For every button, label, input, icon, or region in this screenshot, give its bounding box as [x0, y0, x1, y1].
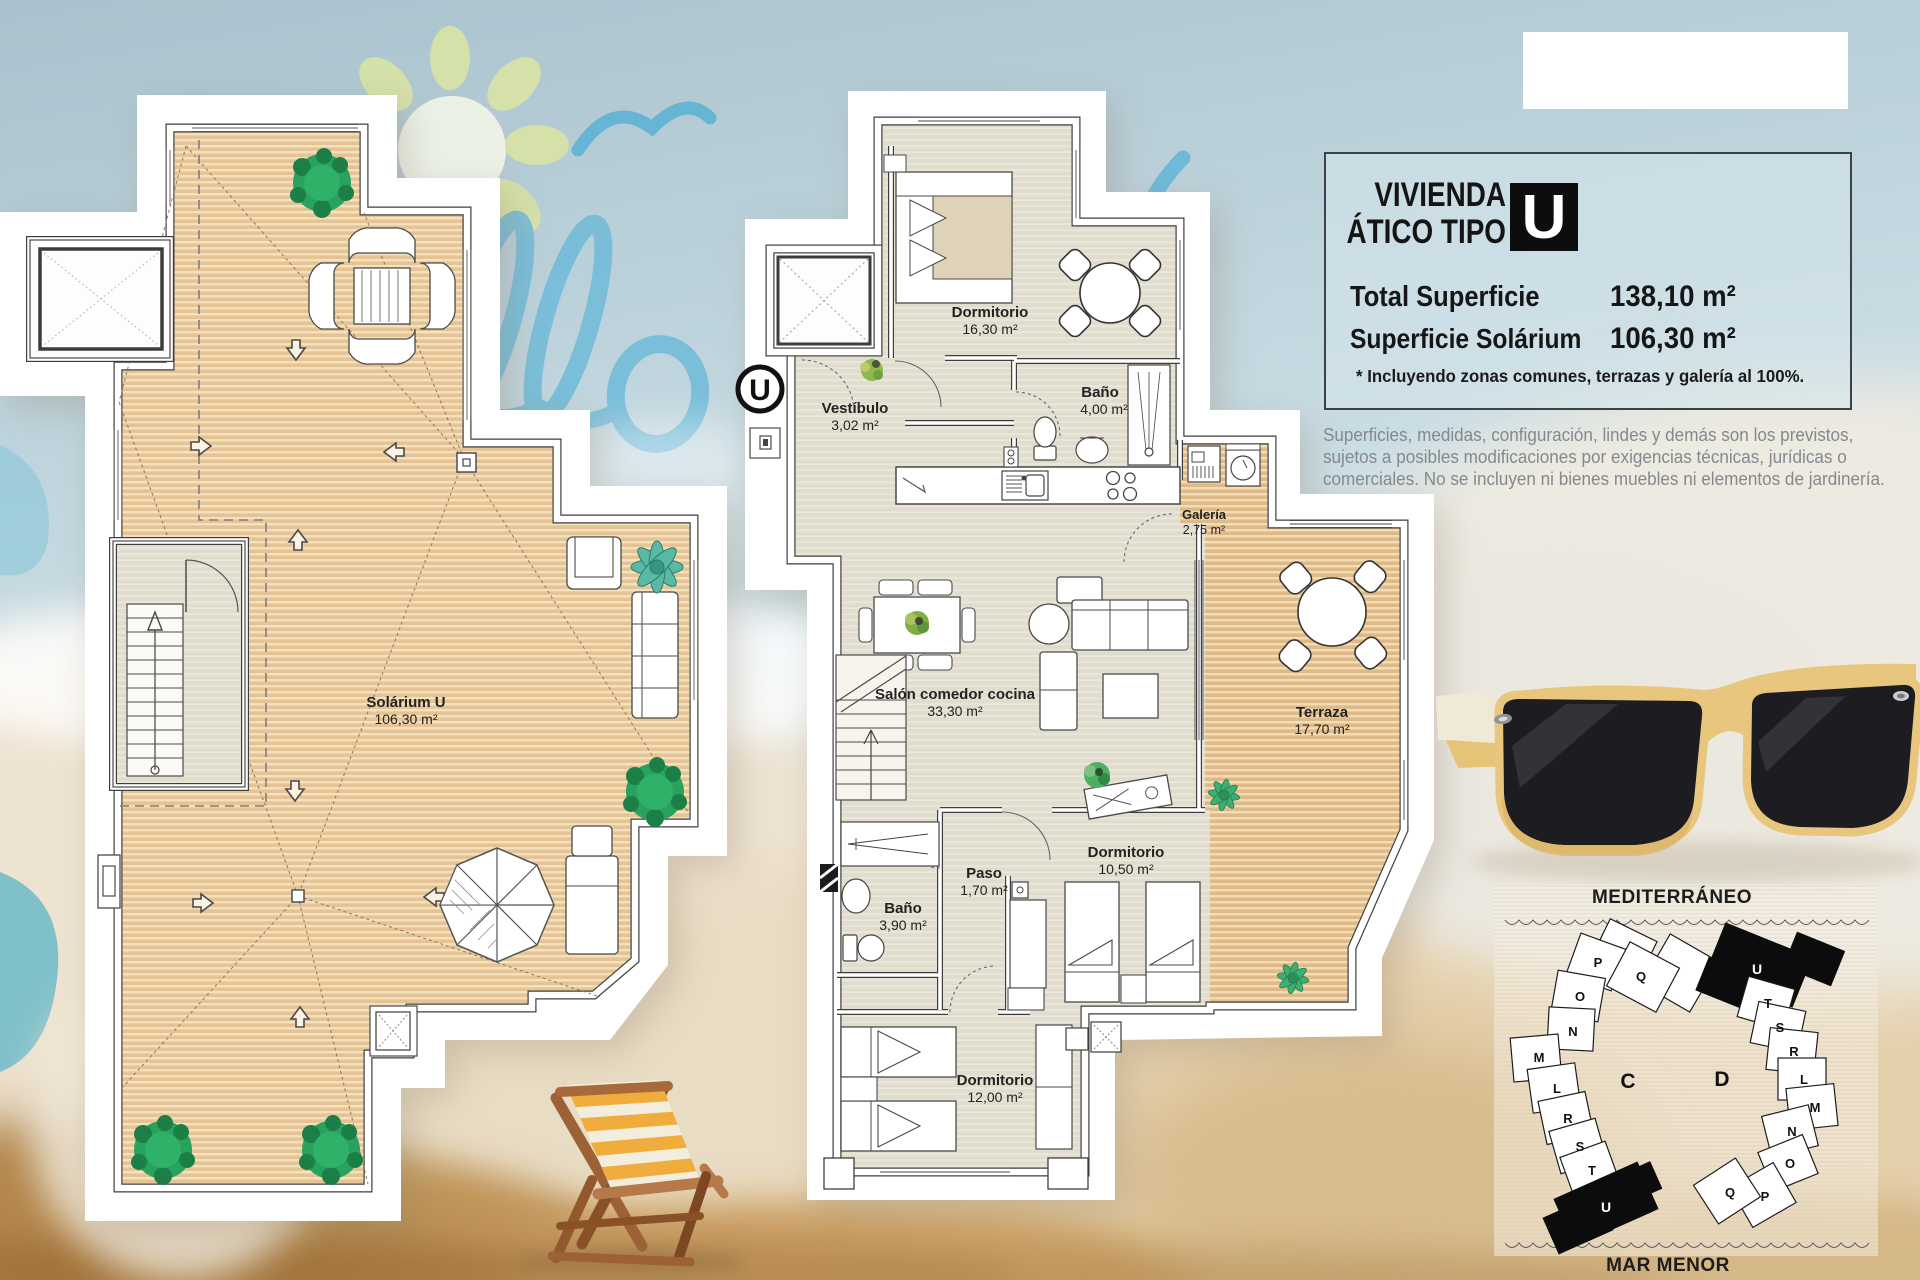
svg-text:Solárium U: Solárium U [366, 694, 445, 711]
svg-text:S: S [1776, 1020, 1785, 1035]
svg-text:Dormitorio: Dormitorio [957, 1072, 1034, 1089]
svg-text:N: N [1568, 1024, 1577, 1039]
svg-text:U: U [1752, 961, 1762, 977]
svg-text:2,75 m²: 2,75 m² [1183, 523, 1225, 537]
svg-text:R: R [1563, 1111, 1573, 1126]
svg-text:12,00 m²: 12,00 m² [967, 1089, 1023, 1105]
svg-text:U: U [749, 374, 771, 407]
svg-text:M: M [1810, 1100, 1821, 1115]
svg-text:P: P [1594, 955, 1603, 970]
svg-text:1,70 m²: 1,70 m² [960, 882, 1008, 898]
svg-text:Galería: Galería [1182, 507, 1227, 522]
svg-text:T: T [1588, 1163, 1596, 1178]
svg-text:R: R [1789, 1044, 1799, 1059]
svg-text:Dormitorio: Dormitorio [952, 304, 1029, 321]
svg-text:Baño: Baño [1081, 384, 1119, 401]
svg-text:Q: Q [1725, 1185, 1735, 1200]
svg-text:3,90 m²: 3,90 m² [879, 917, 927, 933]
svg-text:T: T [1764, 996, 1772, 1011]
svg-text:L: L [1800, 1072, 1808, 1087]
svg-text:S: S [1576, 1139, 1585, 1154]
svg-text:Salón comedor cocina: Salón comedor cocina [875, 686, 1036, 703]
svg-text:4,00 m²: 4,00 m² [1080, 401, 1128, 417]
svg-text:Q: Q [1636, 969, 1646, 984]
svg-text:Dormitorio: Dormitorio [1088, 844, 1165, 861]
svg-text:33,30 m²: 33,30 m² [927, 703, 983, 719]
svg-text:M: M [1534, 1050, 1545, 1065]
svg-text:Terraza: Terraza [1296, 704, 1349, 721]
svg-text:P: P [1761, 1189, 1770, 1204]
svg-text:C: C [1620, 1070, 1635, 1093]
svg-text:16,30 m²: 16,30 m² [962, 321, 1018, 337]
svg-text:MAR MENOR: MAR MENOR [1606, 1255, 1730, 1276]
svg-text:3,02 m²: 3,02 m² [831, 417, 879, 433]
svg-text:MEDITERRÁNEO: MEDITERRÁNEO [1592, 886, 1752, 908]
svg-text:L: L [1553, 1081, 1561, 1096]
svg-text:O: O [1785, 1156, 1795, 1171]
svg-text:17,70 m²: 17,70 m² [1294, 721, 1350, 737]
svg-text:N: N [1787, 1124, 1796, 1139]
svg-text:O: O [1575, 989, 1585, 1004]
svg-text:Paso: Paso [966, 865, 1002, 882]
svg-text:10,50 m²: 10,50 m² [1098, 861, 1154, 877]
svg-text:Baño: Baño [884, 900, 922, 917]
svg-text:106,30 m²: 106,30 m² [374, 711, 437, 727]
svg-text:Vestíbulo: Vestíbulo [822, 400, 889, 417]
svg-text:U: U [1601, 1199, 1611, 1215]
svg-text:D: D [1714, 1068, 1729, 1091]
